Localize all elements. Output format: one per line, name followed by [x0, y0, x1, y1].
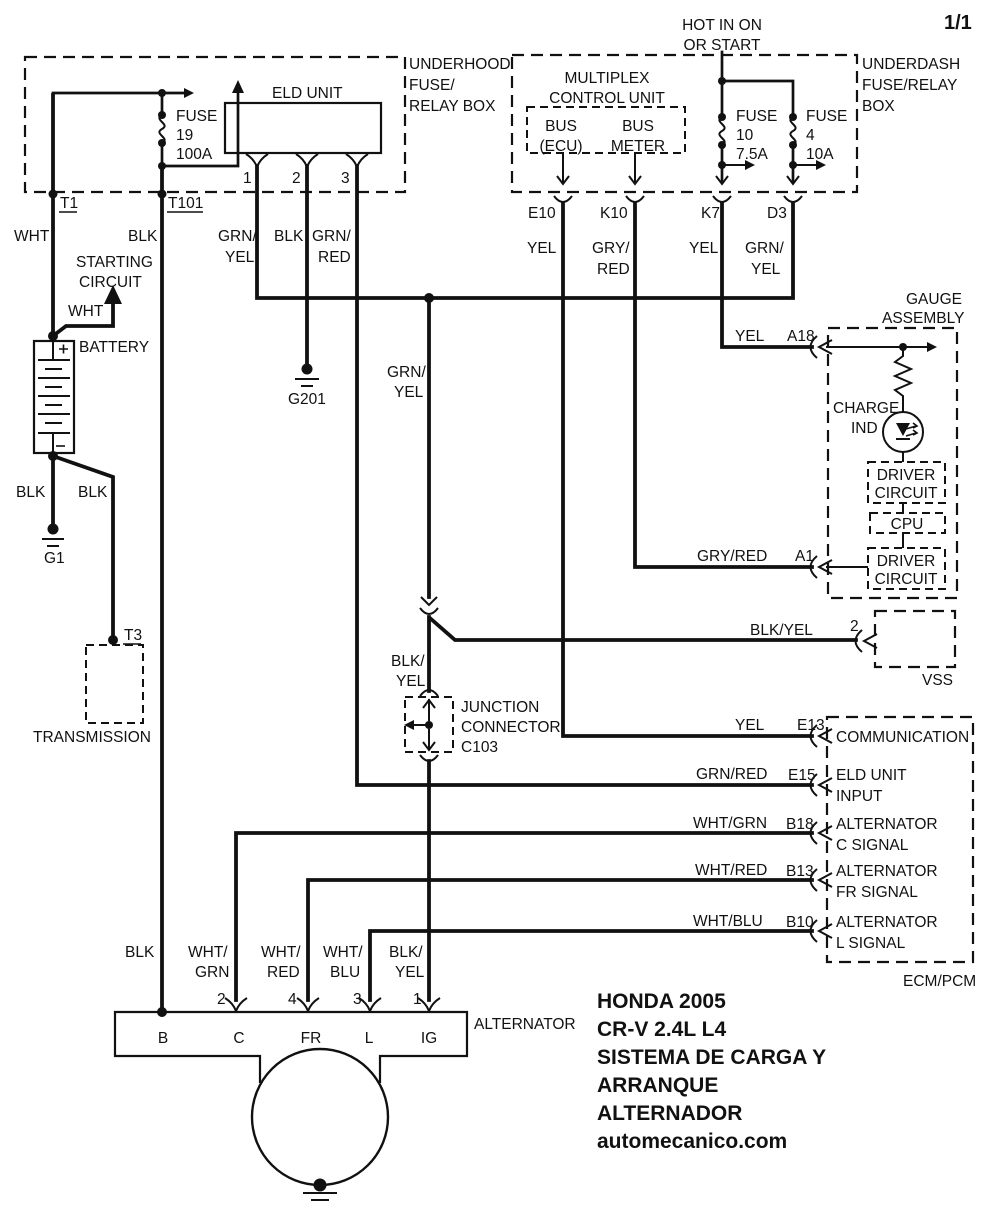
- wire-wht-red-b13: [308, 880, 812, 1000]
- vss: BLK/YEL 2 VSS: [750, 611, 955, 689]
- charge-ind-label: CHARGE: [833, 400, 899, 417]
- fuse-19-element: [159, 115, 164, 143]
- wire-label: YEL: [735, 328, 765, 345]
- battery-label: BATTERY: [79, 339, 149, 356]
- wire-label: GRN/RED: [696, 766, 767, 783]
- ecm-signal-label: ELD UNIT: [836, 767, 907, 784]
- transmission-box: [86, 645, 143, 723]
- fuse-10-element: [719, 117, 724, 145]
- title-block: HONDA 2005 CR-V 2.4L L4 SISTEMA DE CARGA…: [597, 990, 826, 1153]
- starting-circuit-label: STARTING: [76, 254, 153, 271]
- alt-terminal: B: [158, 1030, 168, 1047]
- inline-connector-icon: [420, 608, 438, 614]
- vss-label: VSS: [922, 672, 953, 689]
- connector-cup-icon: [554, 196, 802, 202]
- t101-label: T101: [168, 195, 203, 212]
- fuse-10-label: FUSE: [736, 108, 777, 125]
- underdash-box-label: BOX: [862, 98, 895, 115]
- page-number: 1/1: [944, 12, 972, 34]
- wire-label: BLK/: [391, 653, 425, 670]
- junction-connector-label: C103: [461, 739, 498, 756]
- junction-dot: [424, 293, 434, 303]
- fuse-10-label: 10: [736, 127, 754, 144]
- gauge-assembly-label: ASSEMBLY: [882, 310, 964, 327]
- wire-label: GRN/: [745, 240, 784, 257]
- ecm-signal-label: COMMUNICATION: [836, 729, 969, 746]
- eld-pin-number: 2: [292, 170, 301, 187]
- terminal-t3: [108, 635, 118, 645]
- alternator-label: ALTERNATOR: [474, 1016, 576, 1033]
- title-line: CR-V 2.4L L4: [597, 1018, 726, 1041]
- vss-box-outline: [875, 611, 955, 667]
- wire-label: BLK/: [389, 944, 423, 961]
- wiring-diagram-page: 1/1 UNDERHOOD FUSE/ RELAY BOX FUSE 19 10…: [0, 0, 982, 1209]
- wire-label: WHT/GRN: [693, 815, 767, 832]
- led-icon: [896, 423, 910, 436]
- pin-id: 2: [850, 618, 859, 635]
- wire-label: BLK: [78, 484, 108, 501]
- wire-label: WHT/: [261, 944, 301, 961]
- ecm-signal-label: ALTERNATOR: [836, 863, 938, 880]
- gauge-assembly: GAUGE ASSEMBLY YEL A18 CHARGE IND DRIVER…: [697, 291, 964, 598]
- wire-label: BLK: [128, 228, 158, 245]
- bus-meter-label: BUS: [622, 118, 654, 135]
- wire-wht-blu-b10: [370, 931, 812, 1000]
- wire-label: WHT/: [323, 944, 363, 961]
- pin-id: B10: [786, 914, 814, 931]
- connector-id: K10: [600, 205, 628, 222]
- pin-id: B18: [786, 816, 814, 833]
- wire-label: GRN/: [218, 228, 257, 245]
- underdash-box-label: FUSE/RELAY: [862, 77, 957, 94]
- arrow-down-icon: [557, 176, 799, 184]
- ecm-signal-label: ALTERNATOR: [836, 816, 938, 833]
- gauge-assembly-label: GAUGE: [906, 291, 962, 308]
- alt-pin-number: 4: [288, 991, 297, 1008]
- wire-label: RED: [267, 964, 300, 981]
- wire-yel-e13: [563, 203, 812, 736]
- underhood-box-label: RELAY BOX: [409, 98, 496, 115]
- ground-icon: [302, 364, 313, 375]
- junction-connector-label: JUNCTION: [461, 699, 539, 716]
- ground-icon: [48, 524, 59, 535]
- bus-meter-label: METER: [611, 138, 665, 155]
- battery-circuit: STARTING CIRCUIT WHT BATTERY G1 BLK BLK …: [16, 254, 326, 746]
- bus-ecu-label: (ECU): [539, 138, 582, 155]
- wire-label: BLK: [274, 228, 304, 245]
- junction-connector-label: CONNECTOR: [461, 719, 561, 736]
- ecm-pcm: ECM/PCM YEL E13 COMMUNICATION GRN/RED E1…: [693, 717, 976, 990]
- multiplex-label: MULTIPLEX: [565, 70, 651, 87]
- wire-label: YEL: [395, 964, 425, 981]
- wire-hot-feed: [722, 52, 793, 115]
- connector-id: K7: [701, 205, 720, 222]
- alt-pin-number: 2: [217, 991, 226, 1008]
- connector-cup-icon: [420, 755, 438, 761]
- title-line: ALTERNADOR: [597, 1102, 742, 1125]
- fuse-10-label: 7.5A: [736, 146, 769, 163]
- wire-label: WHT: [68, 303, 104, 320]
- wire-label: YEL: [396, 673, 426, 690]
- driver-circuit-label: DRIVER: [877, 467, 936, 484]
- wire-label: GRY/: [592, 240, 630, 257]
- g1-label: G1: [44, 550, 65, 567]
- wire-label: GRN: [195, 964, 229, 981]
- ecm-signal-label: L SIGNAL: [836, 935, 906, 952]
- pin-id: B13: [786, 863, 814, 880]
- wire-label: WHT/BLU: [693, 913, 763, 930]
- ecm-signal-label: INPUT: [836, 788, 883, 805]
- alternator-rotor: [252, 1049, 388, 1185]
- fuse-4-element: [790, 117, 795, 145]
- wire-label: RED: [597, 261, 630, 278]
- arrow-right-icon: [184, 88, 194, 98]
- junction-connector-c103: GRN/ YEL BLK/ YEL JUNCTION CONNECTOR C10…: [387, 364, 561, 761]
- fuse-4-label: 10A: [806, 146, 834, 163]
- driver-circuit-label: CIRCUIT: [875, 571, 938, 588]
- wire-label: BLK/YEL: [750, 622, 813, 639]
- ground-icon: [303, 1193, 337, 1200]
- wire-label: GRY/RED: [697, 548, 767, 565]
- eld-pin-number: 1: [243, 170, 252, 187]
- wire-label: BLK: [125, 944, 155, 961]
- wire-label: YEL: [225, 249, 255, 266]
- underhood-box-label: UNDERHOOD: [409, 56, 511, 73]
- wire-label: YEL: [735, 717, 765, 734]
- arrow-right-icon: [927, 342, 937, 352]
- arrow-up-icon: [232, 80, 244, 93]
- fuse-19-label: 19: [176, 127, 193, 144]
- alt-terminal: IG: [421, 1030, 437, 1047]
- connector-id: D3: [767, 205, 787, 222]
- title-line: HONDA 2005: [597, 990, 726, 1013]
- alt-terminal: FR: [301, 1030, 322, 1047]
- alt-terminal: C: [233, 1030, 244, 1047]
- alt-terminal: L: [365, 1030, 374, 1047]
- ground-icon: [42, 539, 64, 546]
- driver-circuit-label: DRIVER: [877, 553, 936, 570]
- ground-icon: [295, 379, 319, 386]
- multiplex-label: CONTROL UNIT: [549, 90, 665, 107]
- pin-id: A18: [787, 328, 815, 345]
- charge-ind-label: IND: [851, 420, 878, 437]
- ecm-signal-label: C SIGNAL: [836, 837, 909, 854]
- driver-circuit-label: CIRCUIT: [875, 485, 938, 502]
- hot-label: HOT IN ON: [682, 17, 762, 34]
- wire-label: BLU: [330, 964, 360, 981]
- eld-pin-number: 3: [341, 170, 350, 187]
- ecm-signal-label: FR SIGNAL: [836, 884, 918, 901]
- wire-label: GRN/: [387, 364, 426, 381]
- t3-label: T3: [124, 627, 142, 644]
- wire-label: YEL: [689, 240, 719, 257]
- eld-unit-label: ELD UNIT: [272, 85, 343, 102]
- bus-ecu-label: BUS: [545, 118, 577, 135]
- fuse-19-label: 100A: [176, 146, 213, 163]
- alternator: BLK WHT/ GRN WHT/ RED WHT/ BLU BLK/ YEL …: [115, 944, 576, 1200]
- fuse-4-label: FUSE: [806, 108, 847, 125]
- wire-label: WHT: [14, 228, 50, 245]
- eld-unit-box: [225, 103, 381, 153]
- connector-cup-icon: [420, 690, 438, 696]
- title-line: automecanico.com: [597, 1130, 787, 1153]
- underhood-fuse-relay-box: UNDERHOOD FUSE/ RELAY BOX FUSE 19 100A E…: [25, 56, 511, 212]
- wire-label: WHT/RED: [695, 862, 767, 879]
- ecm-signal-label: ALTERNATOR: [836, 914, 938, 931]
- ground-icon: [314, 1179, 327, 1192]
- wire-blk-t3: [53, 456, 113, 636]
- wire-label: GRN/: [312, 228, 351, 245]
- fuse-19-label: FUSE: [176, 108, 217, 125]
- wire-label: YEL: [394, 384, 424, 401]
- wire-label: WHT/: [188, 944, 228, 961]
- title-line: SISTEMA DE CARGA Y: [597, 1046, 826, 1069]
- wiring-diagram: 1/1 UNDERHOOD FUSE/ RELAY BOX FUSE 19 10…: [0, 0, 982, 1209]
- fuse-4-label: 4: [806, 127, 815, 144]
- connector-id: E10: [528, 205, 556, 222]
- title-line: ARRANQUE: [597, 1074, 718, 1097]
- starting-circuit-label: CIRCUIT: [79, 274, 142, 291]
- underdash-fuse-relay-box: HOT IN ON OR START UNDERDASH FUSE/RELAY …: [512, 17, 960, 222]
- cpu-label: CPU: [891, 516, 924, 533]
- g201-label: G201: [288, 391, 326, 408]
- underdash-box-label: UNDERDASH: [862, 56, 960, 73]
- wire-label: YEL: [527, 240, 557, 257]
- ecm-pcm-label: ECM/PCM: [903, 973, 976, 990]
- transmission-label: TRANSMISSION: [33, 729, 151, 746]
- wire-label: RED: [318, 249, 351, 266]
- wire-label: BLK: [16, 484, 46, 501]
- wire-label: YEL: [751, 261, 781, 278]
- t1-label: T1: [60, 195, 78, 212]
- underhood-box-label: FUSE/: [409, 77, 455, 94]
